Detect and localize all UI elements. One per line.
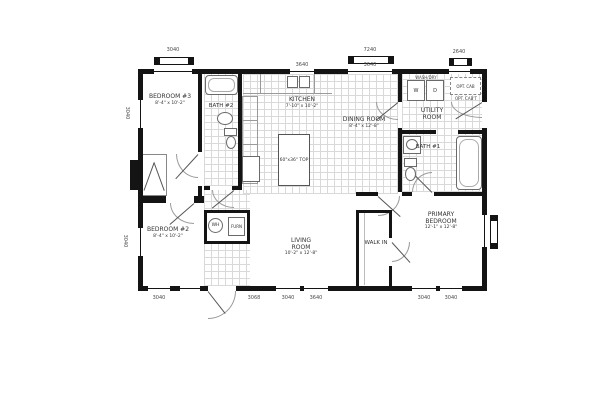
room-dims: 7'-10" x 10'-2" <box>272 104 332 110</box>
callout-top-5: 2640 <box>444 49 474 55</box>
window-glazing <box>348 71 392 72</box>
window-glazing <box>412 288 436 289</box>
room-name: BEDROOM #2 <box>138 227 198 234</box>
kitchen-dining-tile-floor <box>243 74 398 194</box>
kitchen-counter-divider <box>243 144 258 145</box>
kitchen-cabinet-divider <box>314 74 315 93</box>
bath1-toilet-bowl <box>405 167 416 181</box>
bath1-label: BATH #1 <box>410 144 446 151</box>
room-dims: 12'-1" x 12'-8" <box>420 225 462 231</box>
furnace: FURN <box>228 217 245 236</box>
opt-cabinet-caption: OPT. CAB'T <box>447 96 485 101</box>
walkin-wall-top <box>356 210 392 213</box>
dryer-label: D <box>433 88 437 94</box>
wall-primary-north-c <box>434 192 487 196</box>
walkin-label: WALK IN <box>363 240 389 247</box>
callout-bottom-3: 3040 <box>273 295 303 301</box>
wall-dining-utility-lower <box>398 128 402 192</box>
room-dims: 8'-4" x 10'-2" <box>138 234 198 240</box>
room-name: PRIMARY BEDROOM <box>420 212 462 225</box>
left-wall-bump <box>130 160 138 190</box>
window-glazing <box>304 288 328 289</box>
wall-primary-north-a <box>356 192 378 196</box>
range <box>242 156 260 182</box>
walkin-wall-left <box>356 210 359 286</box>
bath1-toilet-tank <box>404 158 417 167</box>
callout-left-1: 3040 <box>124 101 130 125</box>
kitchen-sink-basin <box>287 76 298 88</box>
room-name: BEDROOM #3 <box>140 94 200 101</box>
utility-label: UTILITY ROOM <box>417 108 447 121</box>
room-name: BATH #2 <box>204 103 238 110</box>
room-name: WALK IN <box>363 240 389 247</box>
bar-cap <box>349 57 354 63</box>
callout-bottom-2: 3068 <box>239 295 269 301</box>
wall-bath2-south-right <box>232 186 238 190</box>
kitchen-cabinet-divider <box>260 74 261 93</box>
bar-cap <box>388 57 393 63</box>
living-label: LIVING ROOM 10'-2" x 12'-8" <box>283 238 319 257</box>
room-dims: 10'-2" x 12'-8" <box>283 251 319 257</box>
room-name: DINING ROOM <box>334 117 394 124</box>
bar-cap <box>188 58 193 64</box>
bar-cap <box>155 58 160 64</box>
bath2-label: BATH #2 <box>204 103 238 110</box>
callout-bottom-1: 3040 <box>144 295 174 301</box>
bath2-tub-inner <box>208 78 235 92</box>
window-glazing <box>440 288 462 289</box>
callout-top-4: 3640 <box>355 62 385 68</box>
kitchen-counter-edge <box>243 93 332 94</box>
laundry-caption: WASH/DRY <box>406 75 446 80</box>
window-bar-symbol-top-right <box>449 58 472 66</box>
wall-utility-bath1-left <box>402 130 436 134</box>
washer-box: W <box>407 80 425 101</box>
kitchen-sink-basin <box>299 76 310 88</box>
window-glazing <box>484 215 485 247</box>
dining-label: DINING ROOM 8'-4" x 12'-8" <box>334 117 394 129</box>
callout-bottom-4: 3640 <box>301 295 331 301</box>
kitchen-counter-divider <box>243 120 258 121</box>
wall-bedroom3-bath2-lower <box>198 186 202 196</box>
callout-top-3: 7240 <box>355 47 385 53</box>
walkin-shelf-line <box>364 213 365 285</box>
room-dims: 8'-4" x 12'-8" <box>334 124 394 130</box>
primary-label: PRIMARY BEDROOM 12'-1" x 12'-8" <box>420 212 462 231</box>
water-heater: WH <box>208 218 223 233</box>
wall-bedroom3-bath2-upper <box>198 74 202 152</box>
opt-entry-door-gap <box>482 102 487 128</box>
room-name: UTILITY ROOM <box>417 108 447 121</box>
callout-bottom-6: 3040 <box>436 295 466 301</box>
wall-bath2-kitchen <box>238 74 242 190</box>
wall-utility-bath1-right <box>458 130 482 134</box>
window-glazing <box>148 288 170 289</box>
room-dims: 8'-4" x 10'-2" <box>140 101 200 107</box>
window-glazing <box>180 288 200 289</box>
wall-bedroom2-north-left <box>138 196 166 203</box>
callout-top-2: 3640 <box>287 62 317 68</box>
bath2-toilet-bowl <box>226 136 236 149</box>
bar-cap <box>491 216 497 221</box>
wall-primary-north-b <box>402 192 412 196</box>
bedroom3-closet <box>142 154 167 196</box>
bar-cap <box>450 59 454 65</box>
floorplan-canvas: 60"x36" TOP WASH/DRY W D OPT. CAB OPT. C… <box>0 0 600 400</box>
wall-bedroom2-north-right <box>194 196 204 203</box>
window-bar-symbol-right <box>490 215 498 249</box>
room-name: LIVING ROOM <box>283 238 319 251</box>
island-label: 60"x36" TOP <box>280 158 309 163</box>
bath2-sink <box>217 112 233 125</box>
water-heater-label: WH <box>212 223 220 228</box>
bedroom2-label: BEDROOM #2 8'-4" x 10'-2" <box>138 227 198 239</box>
window-glazing <box>276 288 300 289</box>
kitchen-label: KITCHEN 7'-10" x 10'-2" <box>272 97 332 109</box>
walkin-wall-right-lower <box>389 266 392 286</box>
callout-bottom-5: 3040 <box>409 295 439 301</box>
dryer-box: D <box>426 80 444 101</box>
entry-door-gap <box>208 286 236 291</box>
bar-cap <box>467 59 471 65</box>
room-name: BATH #1 <box>410 144 446 151</box>
window-glazing <box>154 71 192 72</box>
window-glazing <box>290 71 314 72</box>
callout-left-2: 3040 <box>122 229 128 253</box>
washer-label: W <box>414 88 419 94</box>
bath1-tub-inner <box>459 139 479 187</box>
bedroom3-label: BEDROOM #3 8'-4" x 10'-2" <box>140 94 200 106</box>
kitchen-island: 60"x36" TOP <box>278 134 310 186</box>
bar-cap <box>491 243 497 248</box>
bath2-toilet-tank <box>224 128 237 136</box>
window-glazing <box>449 71 470 72</box>
window-bar-symbol-top-left <box>154 57 194 65</box>
walkin-wall-right-upper <box>389 210 392 238</box>
furnace-label: FURN <box>231 224 242 229</box>
opt-cabinet-label: OPT. CAB <box>456 84 474 89</box>
wall-dining-utility-upper <box>398 74 402 102</box>
callout-top-1: 3040 <box>158 47 188 53</box>
opt-cabinet-box: OPT. CAB <box>450 77 481 95</box>
wall-bath2-south-left <box>204 186 210 190</box>
